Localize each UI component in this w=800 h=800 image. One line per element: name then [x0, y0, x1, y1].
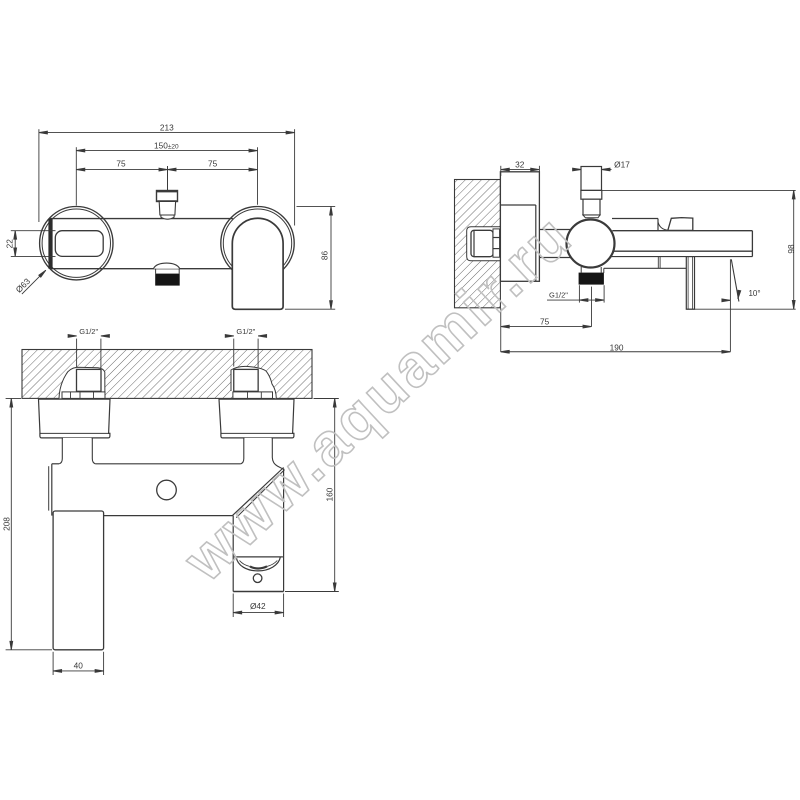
svg-text:10°: 10°	[748, 289, 760, 298]
svg-text:32: 32	[515, 160, 525, 170]
svg-text:Ø42: Ø42	[250, 601, 266, 611]
svg-text:40: 40	[74, 661, 84, 671]
svg-text:213: 213	[160, 123, 174, 133]
svg-text:Ø17: Ø17	[614, 160, 630, 170]
svg-text:G1/2": G1/2"	[236, 327, 255, 336]
svg-text:75: 75	[208, 159, 218, 169]
svg-text:86: 86	[320, 251, 330, 261]
svg-text:75: 75	[116, 159, 126, 169]
svg-text:98: 98	[786, 244, 796, 254]
svg-text:G1/2": G1/2"	[549, 290, 568, 299]
svg-text:22: 22	[5, 239, 15, 249]
svg-text:75: 75	[540, 316, 550, 326]
svg-text:G1/2": G1/2"	[79, 327, 98, 336]
svg-text:208: 208	[1, 517, 11, 531]
svg-text:190: 190	[610, 343, 624, 353]
